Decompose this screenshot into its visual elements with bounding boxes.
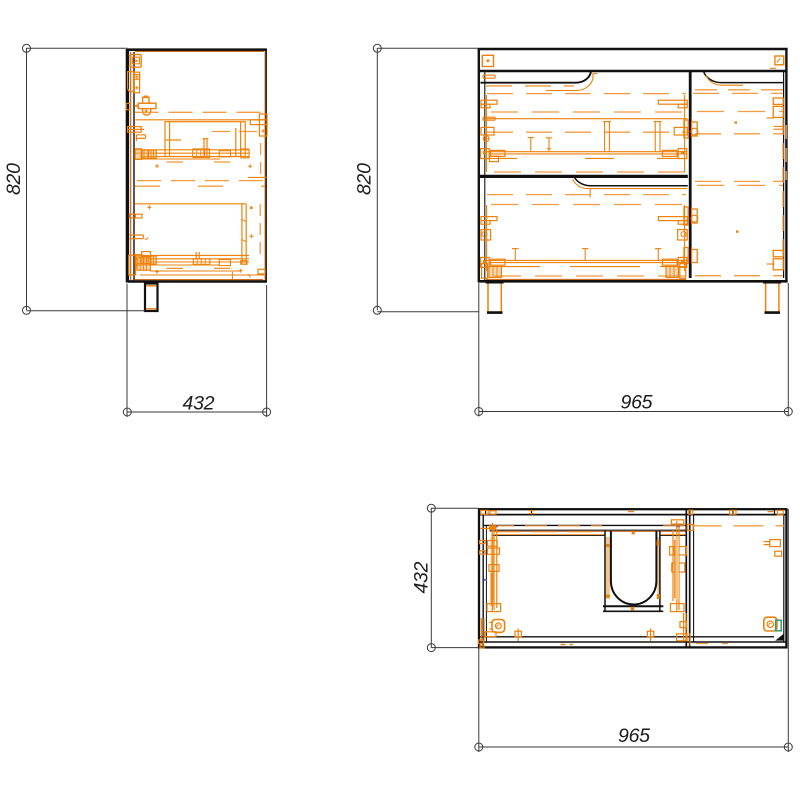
- svg-text:965: 965: [621, 392, 653, 414]
- svg-text:820: 820: [3, 163, 25, 195]
- svg-text:432: 432: [183, 393, 215, 415]
- svg-text:820: 820: [354, 163, 376, 195]
- svg-text:965: 965: [618, 725, 650, 747]
- svg-text:432: 432: [411, 561, 433, 593]
